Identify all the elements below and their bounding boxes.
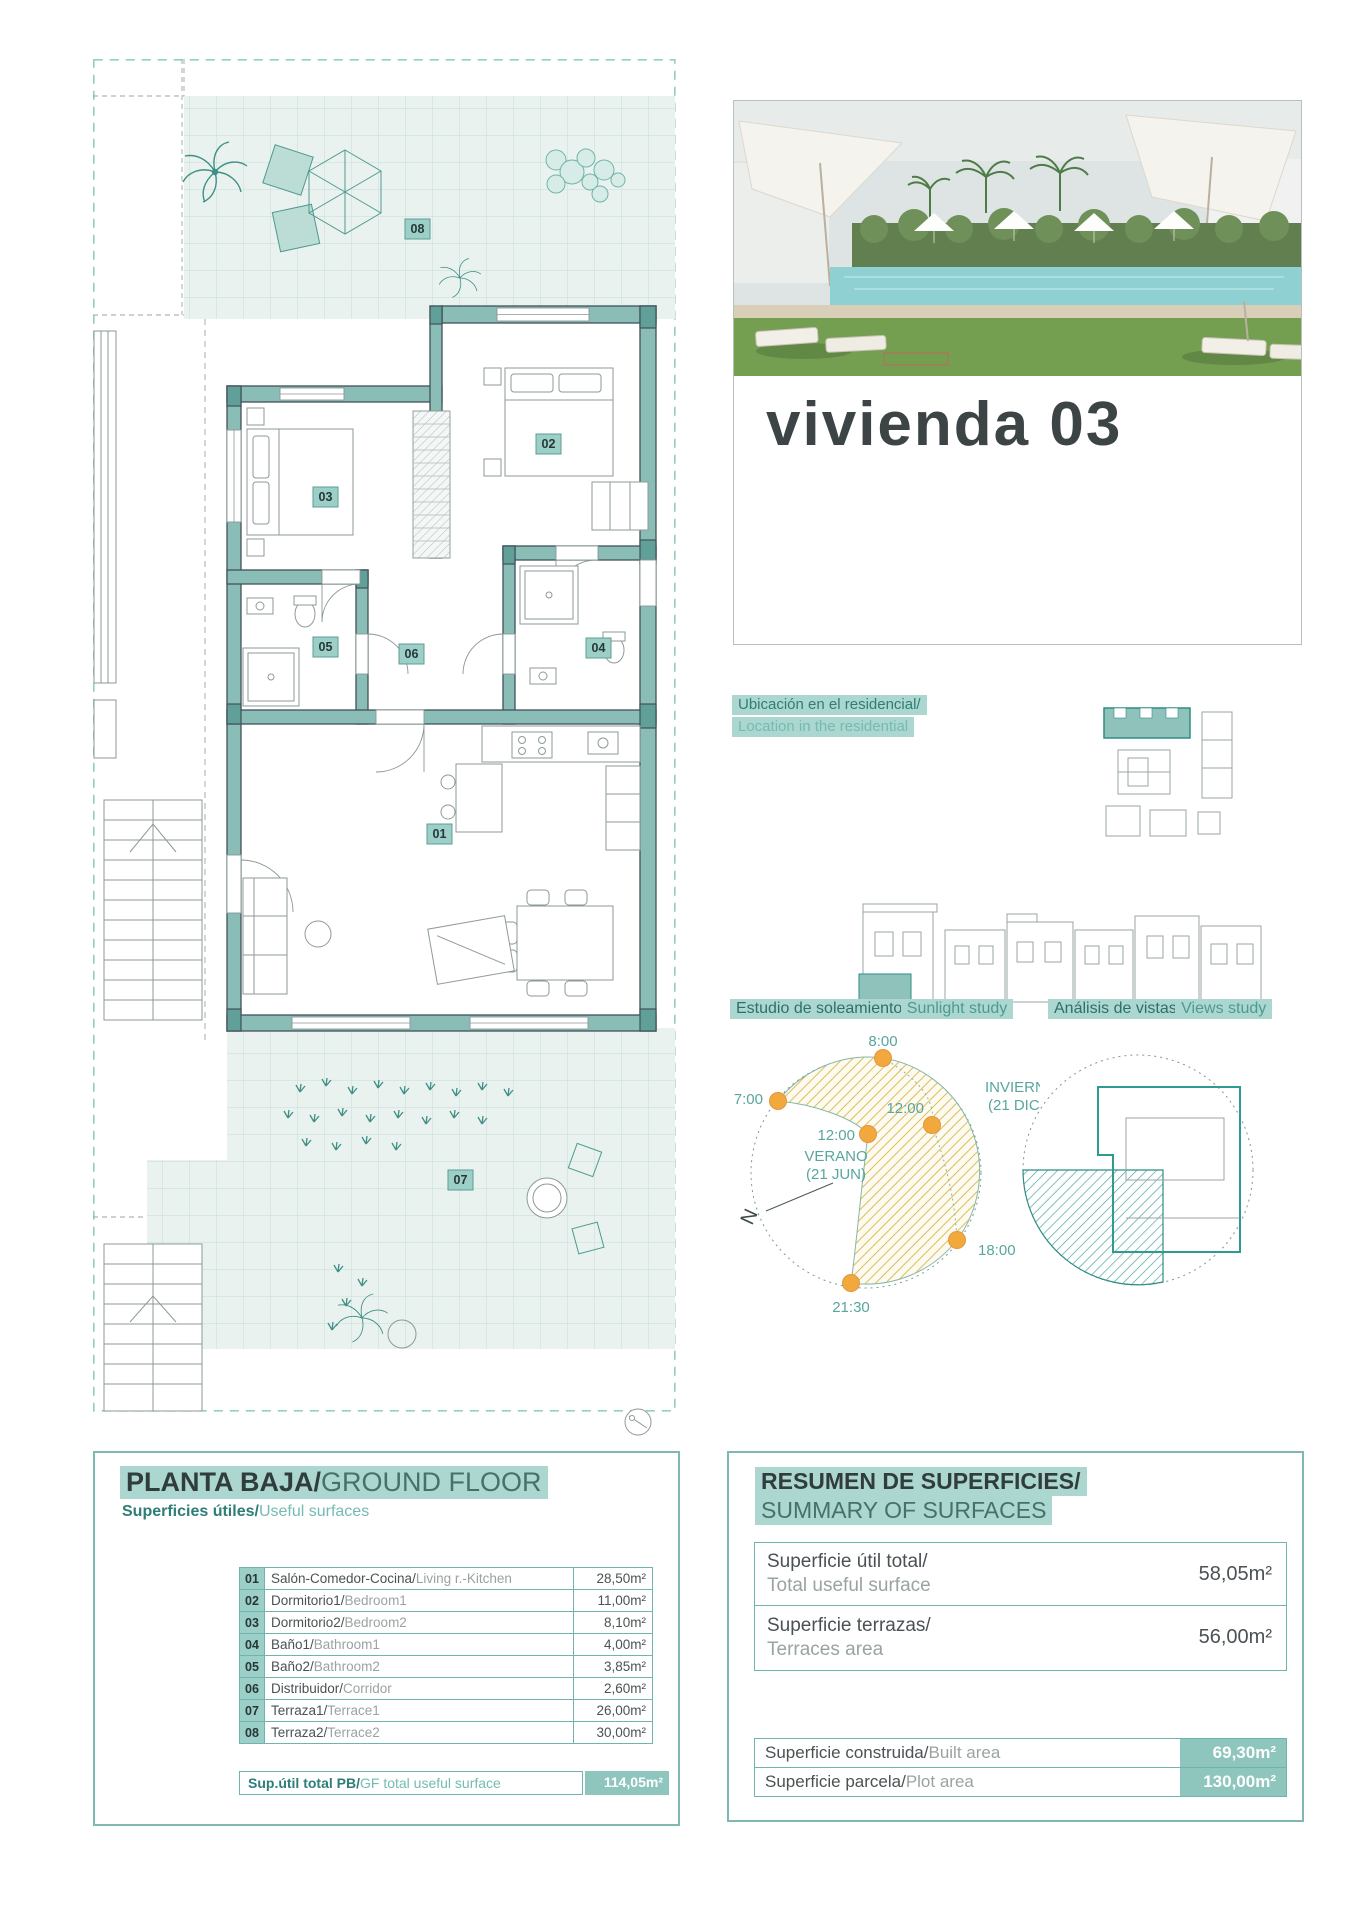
- views-sector: [1023, 1170, 1163, 1285]
- room-badge: 03: [319, 490, 333, 504]
- sun-time-label: 7:00: [734, 1091, 763, 1108]
- location-label: Ubicación en el residencial/ Location in…: [732, 694, 927, 738]
- room-name-es: Terraza2/: [271, 1725, 327, 1740]
- room-name-en: Bathroom2: [314, 1659, 380, 1674]
- total-row: Sup.útil total PB/GF total useful surfac…: [239, 1771, 669, 1795]
- summary-label-en: Built area: [928, 1743, 1000, 1762]
- neighbour-walls: [94, 331, 116, 758]
- room-badge: 04: [592, 641, 606, 655]
- table-row: 02 Dormitorio1/Bedroom1 11,00m²: [240, 1590, 653, 1612]
- compass-icon: [625, 1409, 651, 1435]
- stair-shaft: [413, 411, 450, 558]
- room-surface-value: 11,00m²: [574, 1590, 653, 1612]
- room-name-es: Dormitorio1/: [271, 1593, 345, 1608]
- room-number: 07: [240, 1700, 265, 1722]
- summary-value-highlight: 130,00m²: [1180, 1768, 1286, 1796]
- summary-title-en: SUMMARY OF SURFACES: [755, 1496, 1052, 1525]
- sun-time-label: 12:00: [817, 1127, 855, 1144]
- sun-time-label: 21:30: [832, 1299, 870, 1316]
- summary-title-es: RESUMEN DE SUPERFICIES/: [761, 1468, 1081, 1494]
- sunlight-title-es: Estudio de soleamiento/: [730, 999, 913, 1019]
- ground-floor-card: PLANTA BAJA/GROUND FLOOR Superficies úti…: [93, 1451, 680, 1826]
- summary-card: RESUMEN DE SUPERFICIES/ SUMMARY OF SURFA…: [727, 1451, 1304, 1822]
- room-badge: 07: [454, 1173, 468, 1187]
- summary-row: Superficie parcela/Plot area 130,00m²: [754, 1767, 1287, 1797]
- room-name-es: Terraza1/: [271, 1703, 327, 1718]
- table-row: 06 Distribuidor/Corridor 2,60m²: [240, 1678, 653, 1700]
- room-name-en: Bathroom1: [314, 1637, 380, 1652]
- table-row: 04 Baño1/Bathroom1 4,00m²: [240, 1634, 653, 1656]
- room-surface-value: 3,85m²: [574, 1656, 653, 1678]
- total-value: 114,05m²: [585, 1771, 669, 1795]
- sun-time-label: 8:00: [868, 1033, 897, 1050]
- sunlight-diagram: 8:00 7:00 12:00 VERANO (21 JUN) 12:00 IN…: [720, 1030, 1040, 1330]
- summary-label-es: Superficie útil total/: [767, 1551, 928, 1572]
- terrace-2-floor: [184, 96, 675, 319]
- summary-row: Superficie útil total/Total useful surfa…: [754, 1542, 1287, 1606]
- ground-floor-subtitle: Superficies útiles/Useful surfaces: [122, 1503, 369, 1521]
- room-surface-value: 26,00m²: [574, 1700, 653, 1722]
- summary-row: Superficie terrazas/Terraces area 56,00m…: [754, 1605, 1287, 1671]
- sunlight-title-en: Sunlight study: [901, 999, 1014, 1019]
- summary-label-es: Superficie construida/: [765, 1743, 928, 1762]
- views-title: Análisis de vistas/Views study: [1048, 1000, 1272, 1018]
- room-number: 04: [240, 1634, 265, 1656]
- summary-label-en: Terraces area: [767, 1639, 883, 1660]
- room-name-es: Baño2/: [271, 1659, 314, 1674]
- summary-title: RESUMEN DE SUPERFICIES/ SUMMARY OF SURFA…: [755, 1467, 1087, 1526]
- table-row: 01 Salón-Comedor-Cocina/Living r.-Kitche…: [240, 1568, 653, 1590]
- dwelling-title: vivienda 03: [766, 389, 1122, 460]
- room-surface-value: 8,10m²: [574, 1612, 653, 1634]
- views-title-en: Views study: [1175, 999, 1272, 1019]
- sunlight-title: Estudio de soleamiento/Sunlight study: [730, 1000, 1013, 1018]
- views-title-es: Análisis de vistas/: [1048, 999, 1187, 1019]
- table-row: 08 Terraza2/Terrace2 30,00m²: [240, 1722, 653, 1744]
- total-label-es: Sup.útil total PB/: [248, 1775, 360, 1791]
- table-row: 07 Terraza1/Terrace1 26,00m²: [240, 1700, 653, 1722]
- room-name-es: Distribuidor/: [271, 1681, 343, 1696]
- exterior-stairs: [104, 800, 202, 1411]
- dining-table: [517, 906, 613, 980]
- location-label-es: Ubicación en el residencial/: [732, 695, 927, 715]
- sofa-icon: [243, 878, 287, 994]
- room-name-en: Corridor: [343, 1681, 392, 1696]
- summary-value: 58,05m²: [1199, 1563, 1286, 1586]
- street-elevation: [855, 852, 1267, 1020]
- room-name-es: Dormitorio2/: [271, 1615, 345, 1630]
- summary-value-highlight: 69,30m²: [1180, 1739, 1286, 1767]
- room-badge: 05: [319, 640, 333, 654]
- plan-sheet-page: 08 02 03 05 06 04 01 07: [0, 0, 1356, 1920]
- room-surface-value: 2,60m²: [574, 1678, 653, 1700]
- room-badge: 01: [433, 827, 447, 841]
- ground-floor-title-es: PLANTA BAJA/: [126, 1467, 321, 1497]
- summary-table-built: Superficie construida/Built area 69,30m²…: [754, 1738, 1287, 1797]
- sun-time-label: 12:00: [886, 1100, 924, 1117]
- summary-row: Superficie construida/Built area 69,30m²: [754, 1738, 1287, 1768]
- summary-label-en: Plot area: [906, 1772, 974, 1791]
- room-number: 01: [240, 1568, 265, 1590]
- residential-minimap: [1098, 702, 1248, 864]
- room-name-en: Terrace2: [327, 1725, 380, 1740]
- location-label-en: Location in the residential: [732, 717, 914, 737]
- room-name-es: Salón-Comedor-Cocina/: [271, 1571, 416, 1586]
- ground-floor-subtitle-en: Useful surfaces: [259, 1503, 369, 1520]
- summer-date-label: (21 JUN): [806, 1166, 866, 1183]
- room-number: 06: [240, 1678, 265, 1700]
- summary-label-es: Superficie terrazas/: [767, 1615, 931, 1636]
- room-surfaces-table: 01 Salón-Comedor-Cocina/Living r.-Kitche…: [239, 1567, 653, 1744]
- table-row: 03 Dormitorio2/Bedroom2 8,10m²: [240, 1612, 653, 1634]
- room-name-es: Baño1/: [271, 1637, 314, 1652]
- table-row: 05 Baño2/Bathroom2 3,85m²: [240, 1656, 653, 1678]
- room-number: 03: [240, 1612, 265, 1634]
- views-diagram: [1010, 1030, 1310, 1330]
- room-name-en: Terrace1: [327, 1703, 380, 1718]
- total-label-en: GF total useful surface: [360, 1775, 501, 1791]
- room-badge: 08: [411, 222, 425, 236]
- summary-label-en: Total useful surface: [767, 1575, 931, 1596]
- ground-floor-title: PLANTA BAJA/GROUND FLOOR: [120, 1467, 548, 1498]
- room-name-en: Bedroom1: [345, 1593, 407, 1608]
- room-surface-value: 4,00m²: [574, 1634, 653, 1656]
- room-name-en: Bedroom2: [345, 1615, 407, 1630]
- summary-table-useful: Superficie útil total/Total useful surfa…: [754, 1542, 1287, 1671]
- room-number: 05: [240, 1656, 265, 1678]
- ground-floor-subtitle-es: Superficies útiles/: [122, 1503, 259, 1520]
- room-number: 02: [240, 1590, 265, 1612]
- floor-plan: 08 02 03 05 06 04 01 07: [93, 59, 676, 1451]
- summary-value: 56,00m²: [1199, 1626, 1286, 1649]
- summer-label: VERANO: [804, 1148, 867, 1165]
- room-surface-value: 30,00m²: [574, 1722, 653, 1744]
- room-surface-value: 28,50m²: [574, 1568, 653, 1590]
- north-label: N: [737, 1206, 763, 1228]
- room-number: 08: [240, 1722, 265, 1744]
- kitchen-island: [456, 764, 502, 832]
- room-badge: 02: [542, 437, 556, 451]
- hero-photo: [734, 101, 1301, 376]
- unit-elevation-marker: [859, 974, 911, 1002]
- ground-floor-title-en: GROUND FLOOR: [321, 1467, 542, 1497]
- room-name-en: Living r.-Kitchen: [416, 1571, 512, 1586]
- room-badge: 06: [405, 647, 419, 661]
- pool: [830, 267, 1301, 305]
- summary-label-es: Superficie parcela/: [765, 1772, 906, 1791]
- hero-card: vivienda 03: [733, 100, 1302, 645]
